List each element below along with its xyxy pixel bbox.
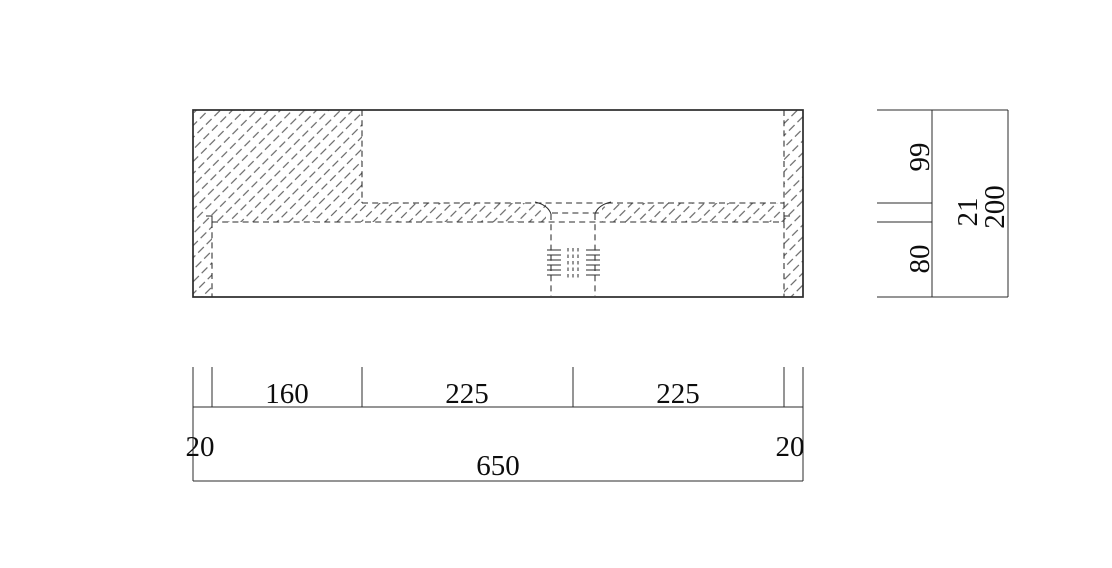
drain-thread-right (586, 250, 600, 275)
dim-total-height: 200 (979, 185, 1011, 229)
hatch-slab-right (602, 203, 784, 222)
drain-thread-left (547, 250, 561, 275)
height-dimensions: 99 80 21 200 (877, 110, 1011, 297)
dim-bowl-front: 225 (445, 378, 489, 410)
hatch-solid-block (193, 110, 362, 222)
drawing-canvas: 99 80 21 200 160 225 225 20 20 650 (0, 0, 1112, 568)
technical-drawing: 99 80 21 200 160 225 225 20 20 650 (0, 0, 1112, 568)
section-view (193, 110, 803, 297)
dim-left-edge: 20 (186, 431, 215, 463)
hatch-right-wall (784, 110, 803, 297)
dim-total-width: 650 (476, 450, 520, 482)
hatch-left-wall (193, 222, 212, 297)
drain-assembly (535, 202, 611, 296)
width-dimensions: 160 225 225 20 20 650 (186, 367, 805, 482)
dim-bowl-back: 225 (656, 378, 700, 410)
drain-center-lines (568, 248, 578, 278)
dim-lower-height: 80 (904, 245, 936, 274)
dim-right-edge: 20 (776, 431, 805, 463)
hatch-slab-left (362, 203, 546, 222)
dim-solid-section: 160 (265, 378, 309, 410)
dim-upper-height: 99 (904, 143, 936, 172)
